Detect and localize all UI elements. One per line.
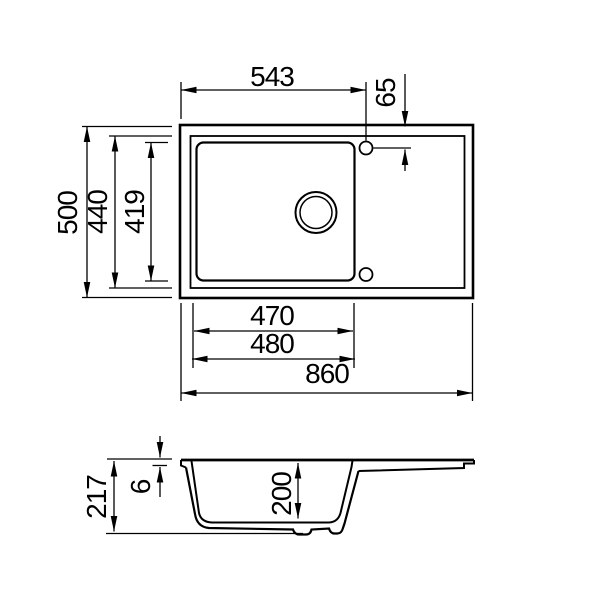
sink-technical-drawing: 543 65 500 440 419 470 480 xyxy=(0,0,600,600)
dim-470-label: 470 xyxy=(250,300,294,331)
dim-480-label: 480 xyxy=(250,328,294,359)
plan-view xyxy=(180,125,473,298)
dim-419: 419 xyxy=(119,143,168,282)
drawing-canvas: 543 65 500 440 419 470 480 xyxy=(0,0,600,600)
dim-543: 543 xyxy=(181,61,366,141)
dim-65: 65 xyxy=(370,74,411,171)
dim-480: 480 xyxy=(192,328,355,359)
dim-543-label: 543 xyxy=(250,61,294,92)
dim-6: 6 xyxy=(125,436,167,497)
dim-6-label: 6 xyxy=(125,479,156,494)
sink-rim-inner-line xyxy=(191,136,465,288)
section-drainer-underside xyxy=(359,460,475,471)
dim-500-label: 500 xyxy=(52,191,83,235)
dim-860-label: 860 xyxy=(305,358,349,389)
tap-hole-top xyxy=(360,142,373,155)
bowl-outline xyxy=(197,143,355,281)
drain-inner-circle xyxy=(300,197,332,229)
dim-200: 200 xyxy=(266,463,298,519)
drain-outer-circle xyxy=(296,192,337,233)
sink-outer-outline xyxy=(180,125,473,298)
dim-200-label: 200 xyxy=(266,472,297,516)
tap-hole-bottom xyxy=(360,268,373,281)
dim-217-label: 217 xyxy=(81,475,112,519)
dim-65-label: 65 xyxy=(370,78,401,108)
dim-860: 860 xyxy=(181,303,473,401)
dim-440-label: 440 xyxy=(82,190,113,234)
dim-419-label: 419 xyxy=(119,190,150,234)
